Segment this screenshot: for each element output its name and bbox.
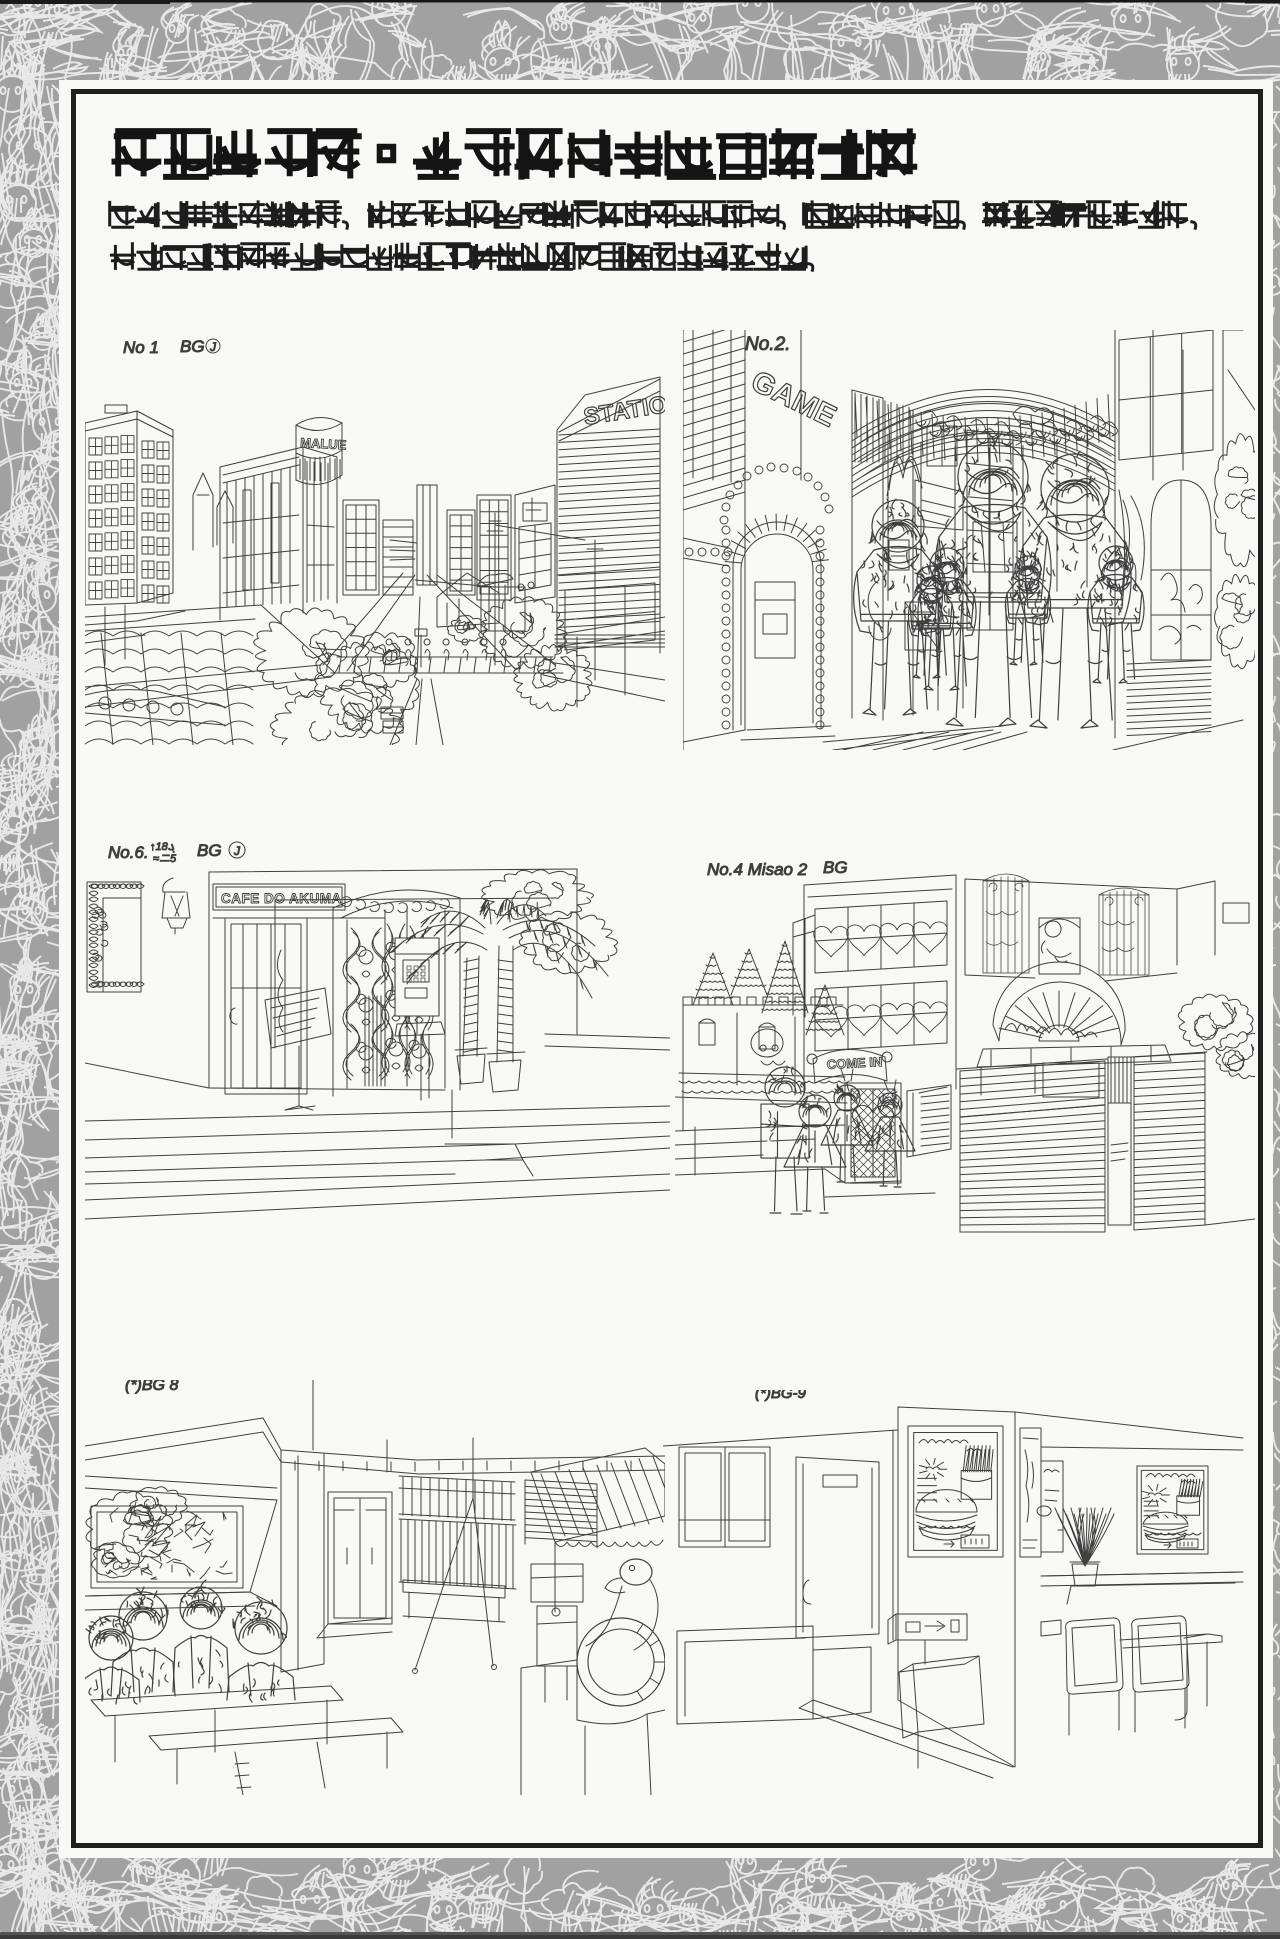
svg-text:MALUE: MALUE (300, 435, 347, 452)
svg-text:(*)BG-9: (*)BG-9 (755, 1390, 806, 1402)
svg-text:↑ܓ18: ↑ܓ18 (150, 841, 175, 853)
svg-text:J: J (233, 844, 241, 858)
svg-text:BG: BG (180, 337, 205, 356)
svg-text:No 1: No 1 (123, 338, 159, 357)
svg-text:BG: BG (823, 858, 848, 877)
svg-text:No.2.: No.2. (745, 334, 790, 355)
svg-text:BG: BG (197, 841, 222, 860)
svg-text:(*)BG 8: (*)BG 8 (125, 1380, 178, 1394)
svg-text:COME IN: COME IN (826, 1054, 882, 1072)
svg-text:≈ニ5: ≈ニ5 (153, 853, 177, 865)
svg-text:CAFE DO AKUMA: CAFE DO AKUMA (221, 891, 342, 906)
svg-text:No.4 Misao 2: No.4 Misao 2 (707, 860, 808, 879)
svg-text:GAME: GAME (746, 365, 841, 434)
svg-text:J: J (209, 340, 217, 354)
svg-text:No.6.: No.6. (108, 843, 149, 862)
